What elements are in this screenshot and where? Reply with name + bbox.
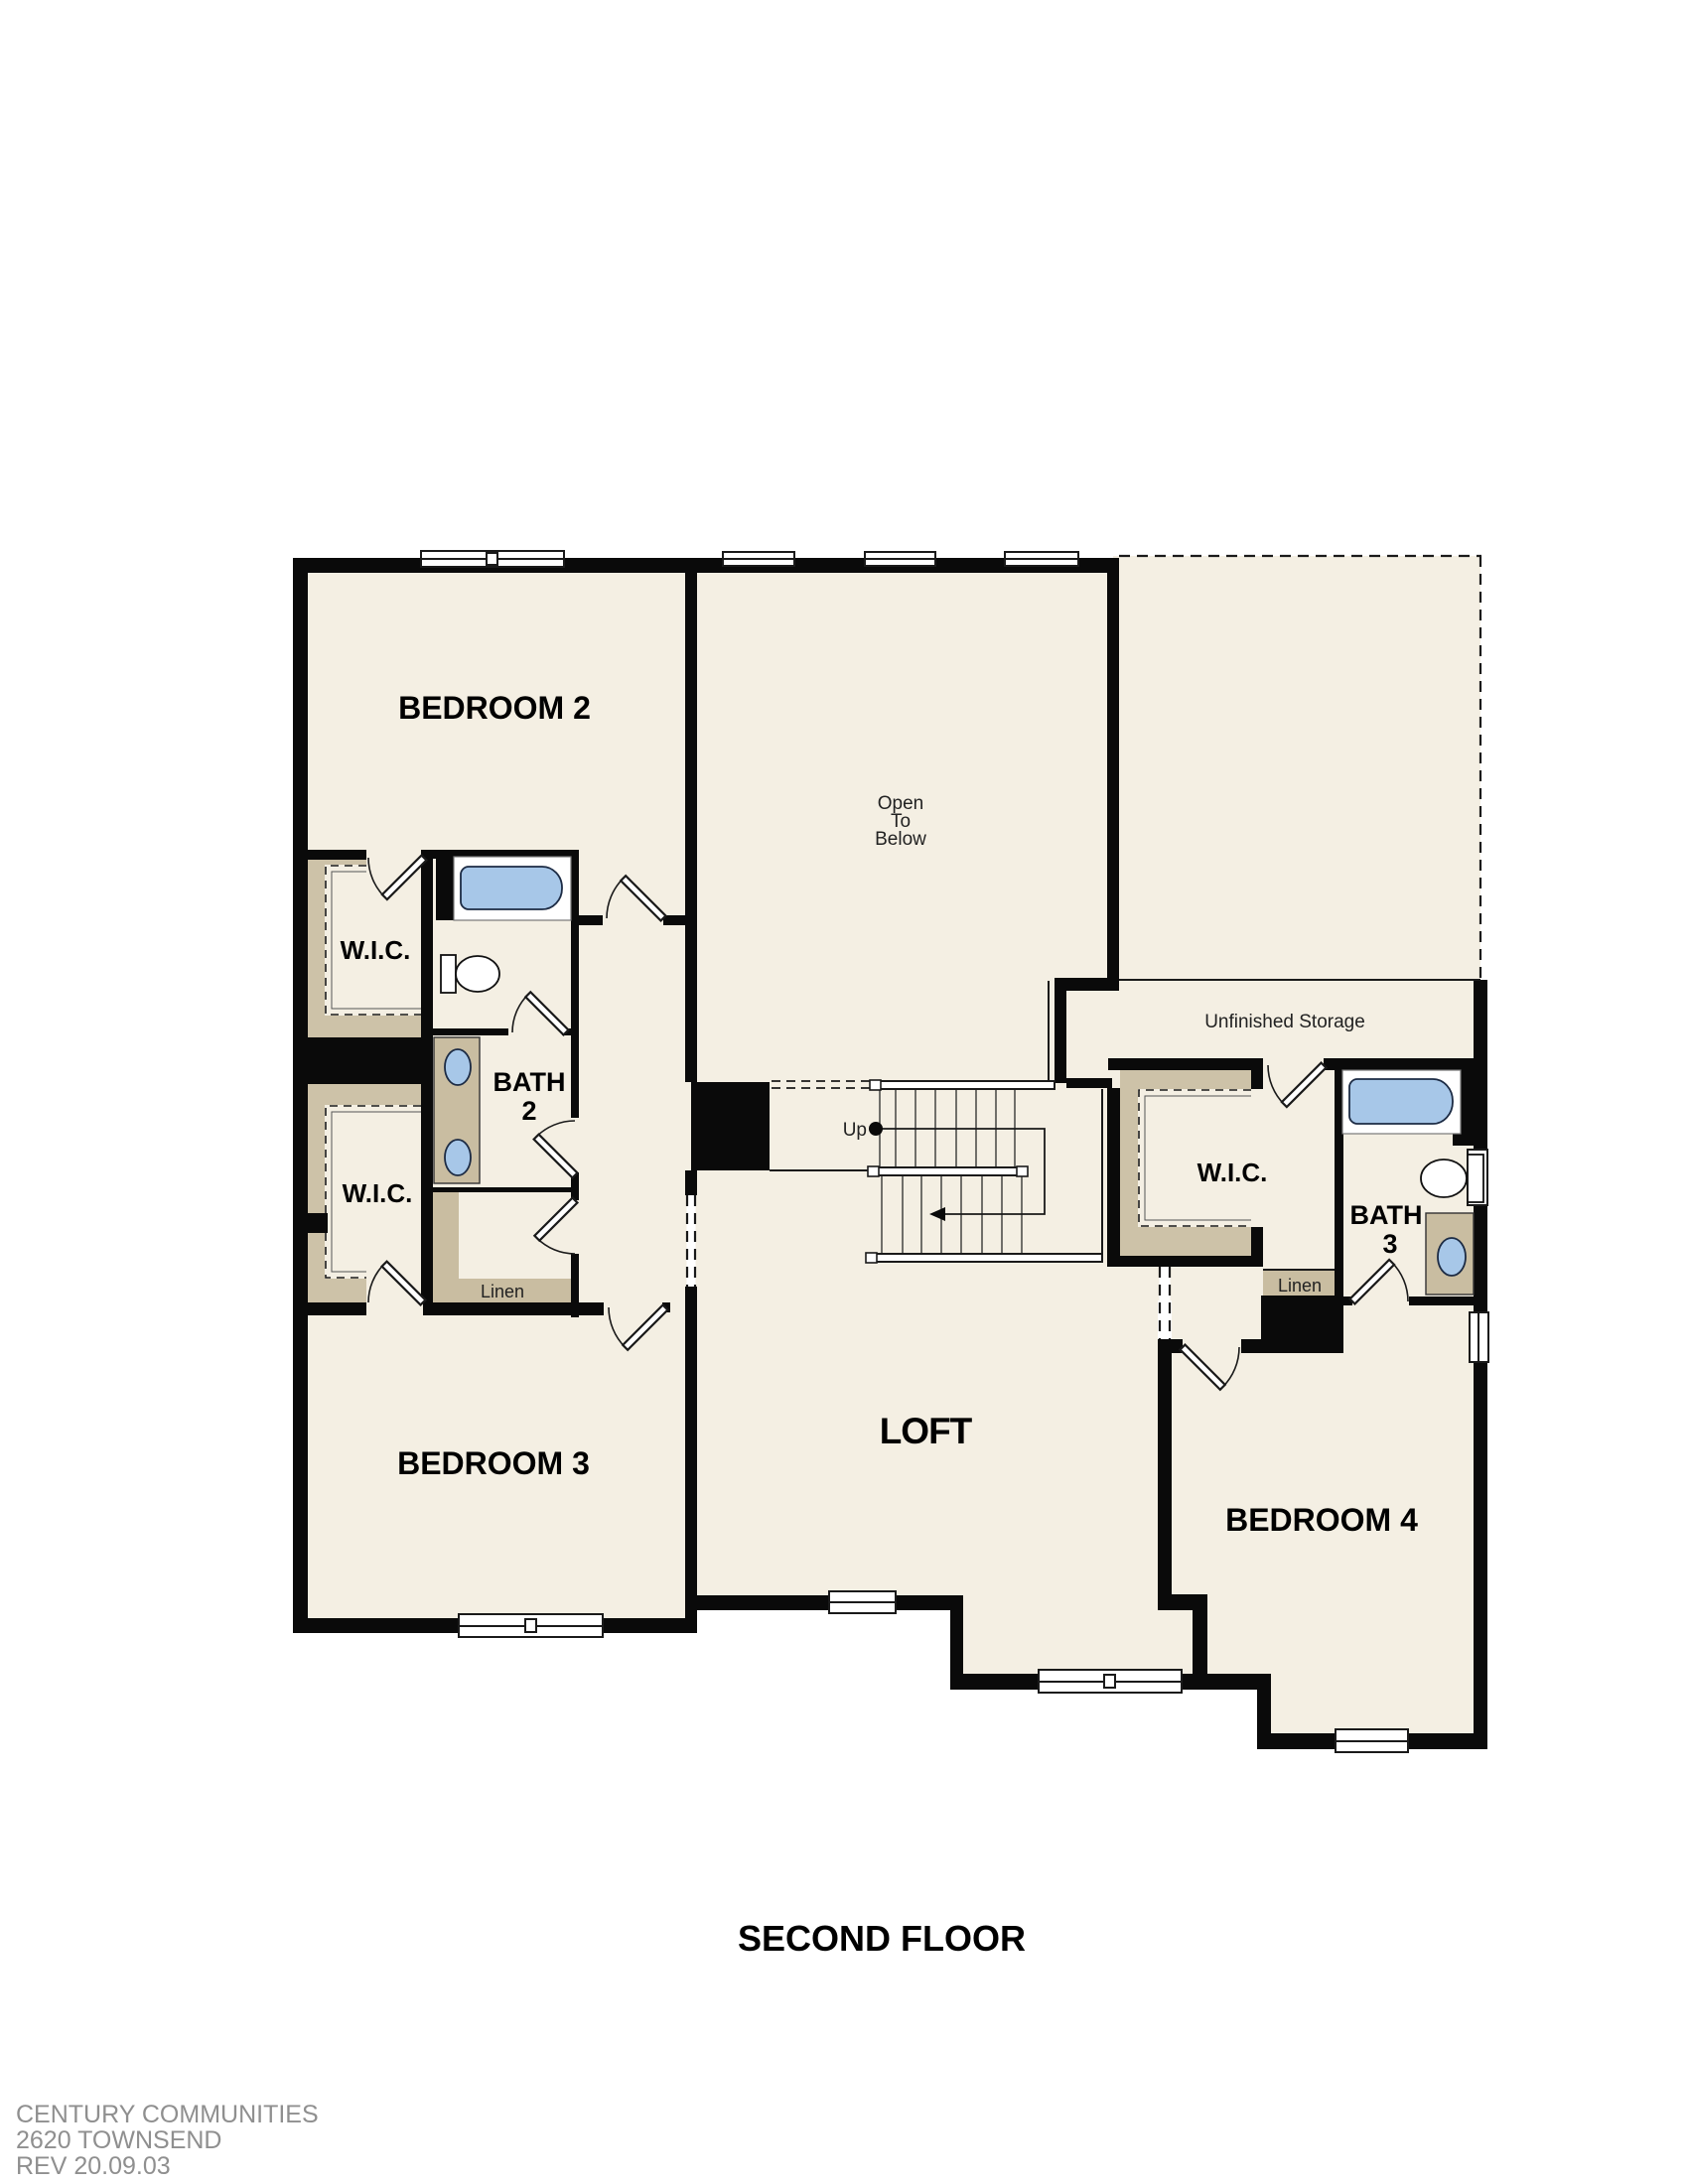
svg-text:BEDROOM 2: BEDROOM 2 — [398, 690, 591, 726]
svg-text:REV 20.09.03: REV 20.09.03 — [16, 2152, 171, 2180]
svg-text:LOFT: LOFT — [880, 1411, 973, 1451]
svg-text:SECOND FLOOR: SECOND FLOOR — [738, 1918, 1026, 1959]
svg-text:W.I.C.: W.I.C. — [1197, 1158, 1268, 1187]
svg-text:2620 TOWNSEND: 2620 TOWNSEND — [16, 2126, 221, 2154]
svg-text:W.I.C.: W.I.C. — [341, 935, 411, 965]
svg-text:BEDROOM 4: BEDROOM 4 — [1225, 1502, 1418, 1538]
svg-text:Unfinished Storage: Unfinished Storage — [1204, 1012, 1365, 1032]
svg-text:Up: Up — [843, 1120, 867, 1141]
svg-text:BATH: BATH — [1350, 1200, 1423, 1230]
svg-text:W.I.C.: W.I.C. — [343, 1178, 413, 1208]
svg-text:Linen: Linen — [481, 1282, 524, 1301]
svg-text:Below: Below — [875, 829, 926, 850]
svg-text:CENTURY COMMUNITIES: CENTURY COMMUNITIES — [16, 2101, 319, 2128]
svg-text:3: 3 — [1382, 1229, 1397, 1259]
svg-text:BEDROOM 3: BEDROOM 3 — [397, 1445, 590, 1481]
svg-text:Linen: Linen — [1278, 1276, 1322, 1296]
svg-text:BATH: BATH — [493, 1067, 566, 1097]
svg-text:2: 2 — [521, 1096, 536, 1126]
